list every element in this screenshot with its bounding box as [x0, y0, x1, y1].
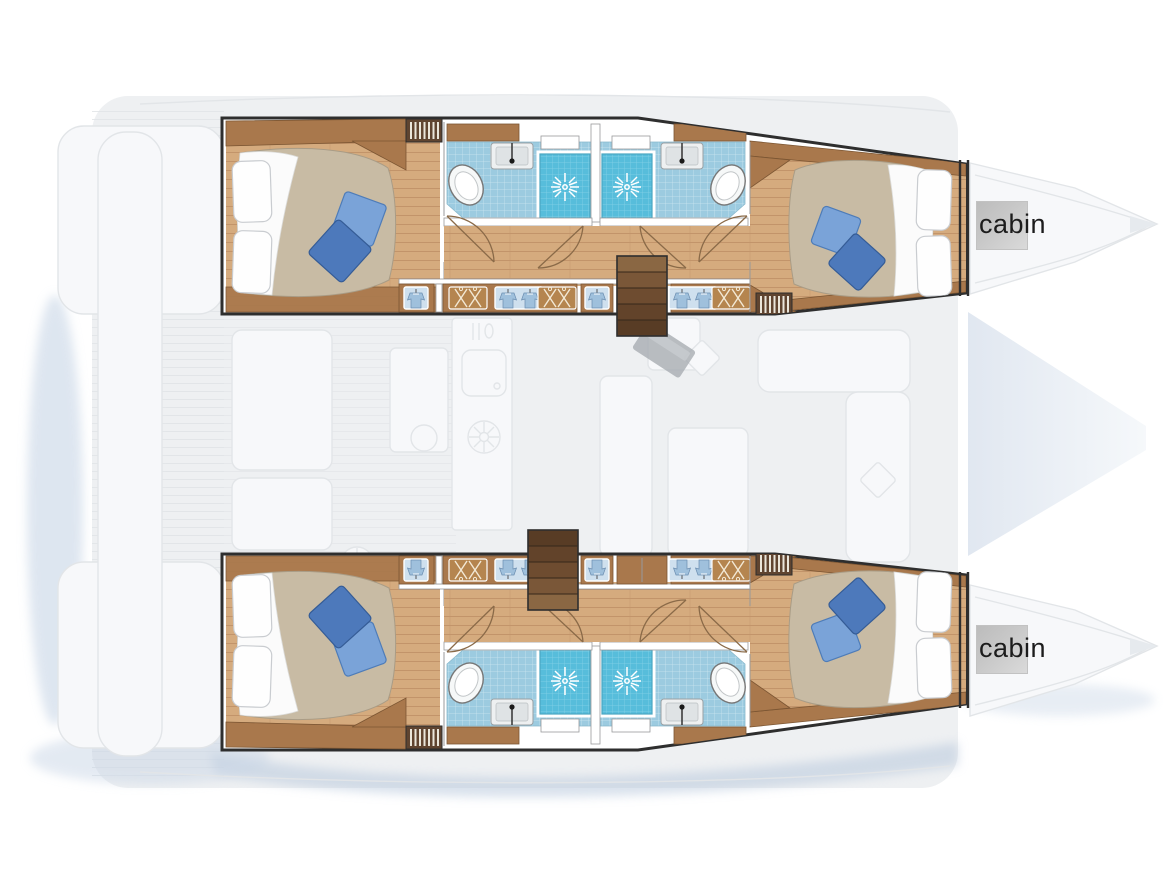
ghost-cockpit-seat — [232, 330, 332, 470]
cabin-label-starboard-bow: cabin — [976, 625, 1066, 672]
companionway-stairs-port — [617, 256, 667, 336]
companionway-stairs-starboard — [528, 530, 578, 610]
ghost-galley-sink — [462, 350, 506, 396]
catamaran-floor-plan-page: cabin cabin — [0, 0, 1173, 879]
port-hull — [222, 118, 968, 316]
ghost-sofa — [758, 330, 910, 392]
ghost-dining-table — [668, 428, 748, 556]
cabin-label-port-bow: cabin — [976, 201, 1066, 248]
ghost-hatch-icon — [468, 421, 500, 453]
cabin-label-text: cabin — [979, 208, 1046, 239]
catamaran-floor-plan — [0, 0, 1173, 879]
starboard-hull — [222, 552, 968, 750]
ghost-side-deck — [98, 132, 162, 756]
ghost-bench — [600, 376, 652, 556]
ghost-trampoline-area — [968, 312, 1146, 556]
cabin-label-text: cabin — [979, 632, 1046, 663]
